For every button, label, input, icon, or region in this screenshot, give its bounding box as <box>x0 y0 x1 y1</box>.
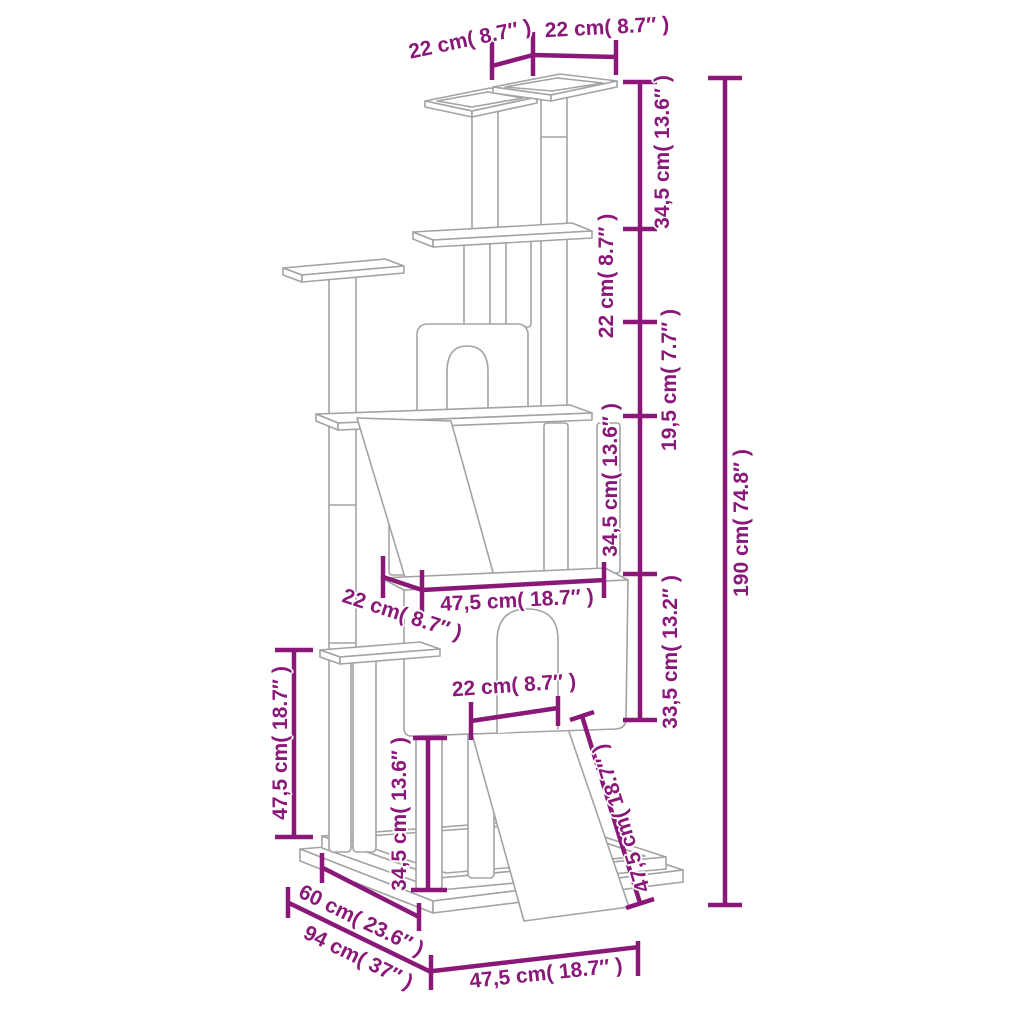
post <box>353 656 376 852</box>
dim-label-height-segment-2: 22 cm( 8.7″ ) <box>595 214 619 338</box>
post <box>472 101 498 235</box>
upper-ramp <box>357 418 494 584</box>
post <box>329 656 351 852</box>
dim-label-height-segment-1: 34,5 cm( 13.6″ ) <box>651 75 675 229</box>
dim-label-height-segment-5: 33,5 cm( 13.2″ ) <box>659 575 683 729</box>
dim-label-height-segment-3: 19,5 cm( 7.7″ ) <box>658 309 682 451</box>
post <box>464 240 490 328</box>
dim-label-total-height: 190 cm( 74.8″ ) <box>730 449 754 597</box>
dim-label-front-post-height: 34,5 cm( 13.6″ ) <box>388 737 412 891</box>
post <box>544 423 568 575</box>
dimension-diagram: 22 cm( 8.7″ ) 22 cm( 8.7″ ) 34,5 cm( 13.… <box>0 0 1024 1024</box>
platform-board <box>283 259 404 282</box>
post <box>506 240 531 327</box>
cat-tree-line-drawing <box>0 0 1024 1024</box>
dim-label-left-post-height: 47,5 cm( 18.7″ ) <box>269 666 293 820</box>
dim-label-height-segment-4: 34,5 cm( 13.6″ ) <box>599 403 623 557</box>
